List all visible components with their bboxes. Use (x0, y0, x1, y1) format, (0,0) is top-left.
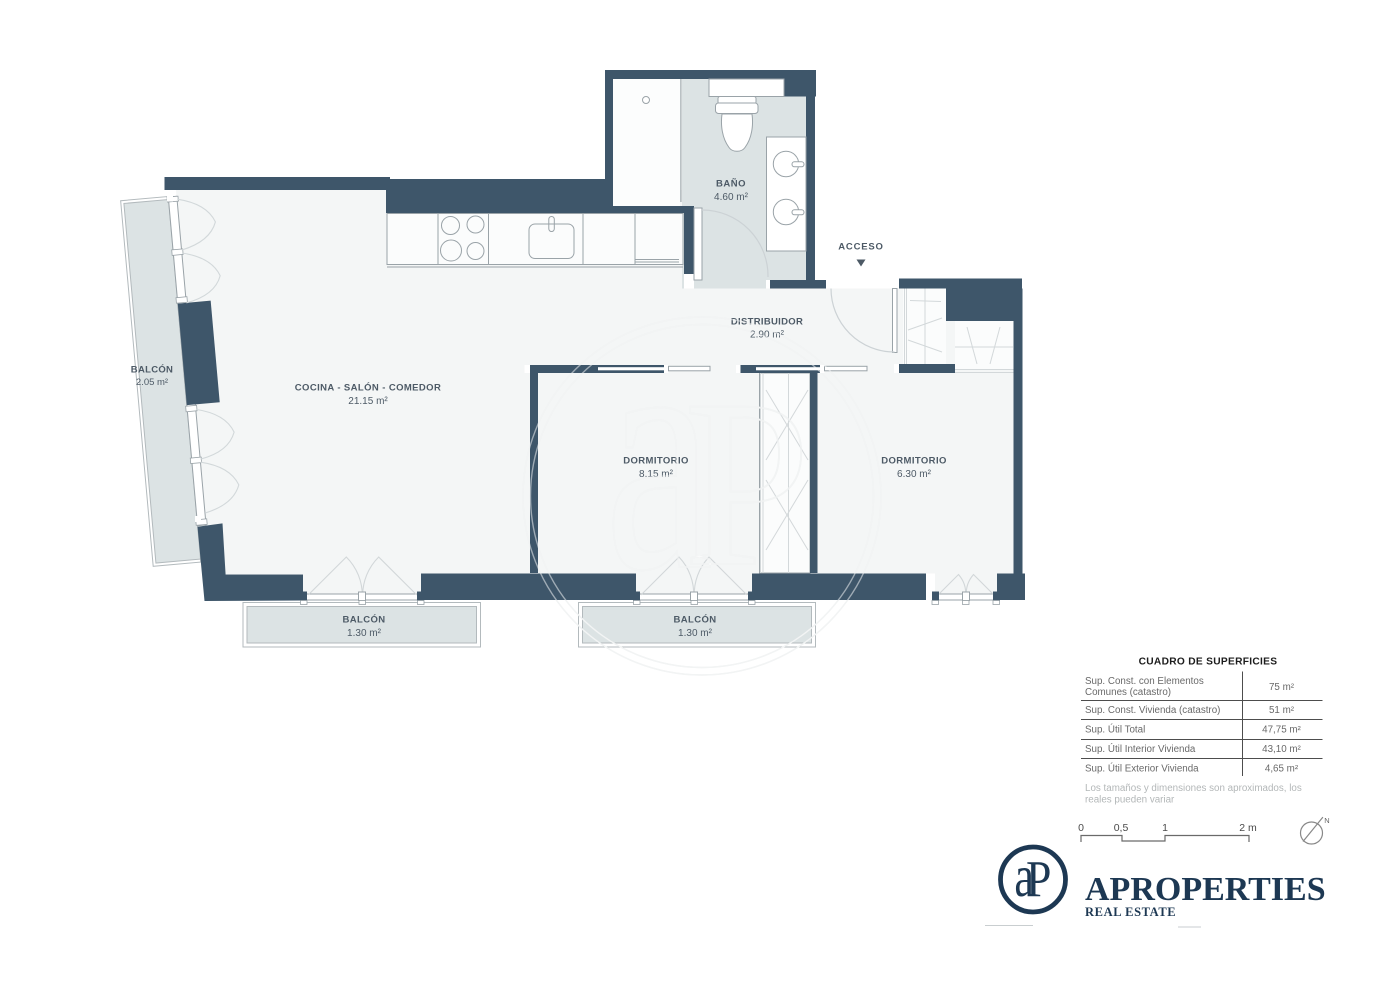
svg-text:43,10 m²: 43,10 m² (1262, 744, 1301, 755)
svg-text:P: P (684, 350, 811, 617)
svg-text:CUADRO DE SUPERFICIES: CUADRO DE SUPERFICIES (1139, 657, 1278, 668)
svg-text:Comunes (catastro): Comunes (catastro) (1085, 687, 1171, 698)
svg-text:Sup. Const. Vivienda (catastro: Sup. Const. Vivienda (catastro) (1085, 705, 1220, 716)
svg-text:4,65 m²: 4,65 m² (1265, 764, 1299, 775)
svg-text:APROPERTIES: APROPERTIES (1085, 871, 1326, 908)
svg-text:reales pueden variar: reales pueden variar (1085, 795, 1175, 806)
svg-text:0: 0 (1078, 822, 1084, 834)
svg-text:BALCÓN: BALCÓN (342, 614, 385, 626)
svg-text:1: 1 (1162, 822, 1168, 834)
svg-text:6.30 m²: 6.30 m² (897, 469, 932, 480)
svg-text:BAÑO: BAÑO (716, 179, 746, 190)
svg-text:51 m²: 51 m² (1269, 705, 1295, 716)
svg-text:P: P (1026, 850, 1051, 908)
svg-text:75 m²: 75 m² (1269, 682, 1295, 693)
svg-text:21.15 m²: 21.15 m² (348, 396, 388, 407)
svg-text:2 m: 2 m (1239, 822, 1257, 834)
svg-text:DORMITORIO: DORMITORIO (881, 456, 947, 467)
svg-text:Sup. Útil Total: Sup. Útil Total (1085, 725, 1145, 736)
svg-text:4.60 m²: 4.60 m² (714, 192, 749, 203)
svg-text:REAL ESTATE: REAL ESTATE (1085, 905, 1176, 919)
svg-text:1.30 m²: 1.30 m² (347, 628, 382, 639)
svg-text:COCINA - SALÓN - COMEDOR: COCINA - SALÓN - COMEDOR (295, 382, 441, 394)
svg-text:2.05 m²: 2.05 m² (136, 377, 168, 388)
svg-text:N: N (1324, 816, 1329, 825)
svg-text:Los tamaños y dimensiones son: Los tamaños y dimensiones son aproximado… (1085, 783, 1302, 794)
svg-text:ACCESO: ACCESO (838, 242, 883, 253)
svg-text:BALCÓN: BALCÓN (131, 364, 173, 376)
svg-text:47,75 m²: 47,75 m² (1262, 725, 1301, 736)
svg-text:Sup. Const. con Elementos: Sup. Const. con Elementos (1085, 676, 1204, 687)
svg-text:0,5: 0,5 (1114, 822, 1129, 834)
svg-text:Sup. Útil Interior Vivienda: Sup. Útil Interior Vivienda (1085, 744, 1196, 755)
svg-text:Sup. Útil Exterior Vivienda: Sup. Útil Exterior Vivienda (1085, 764, 1199, 775)
